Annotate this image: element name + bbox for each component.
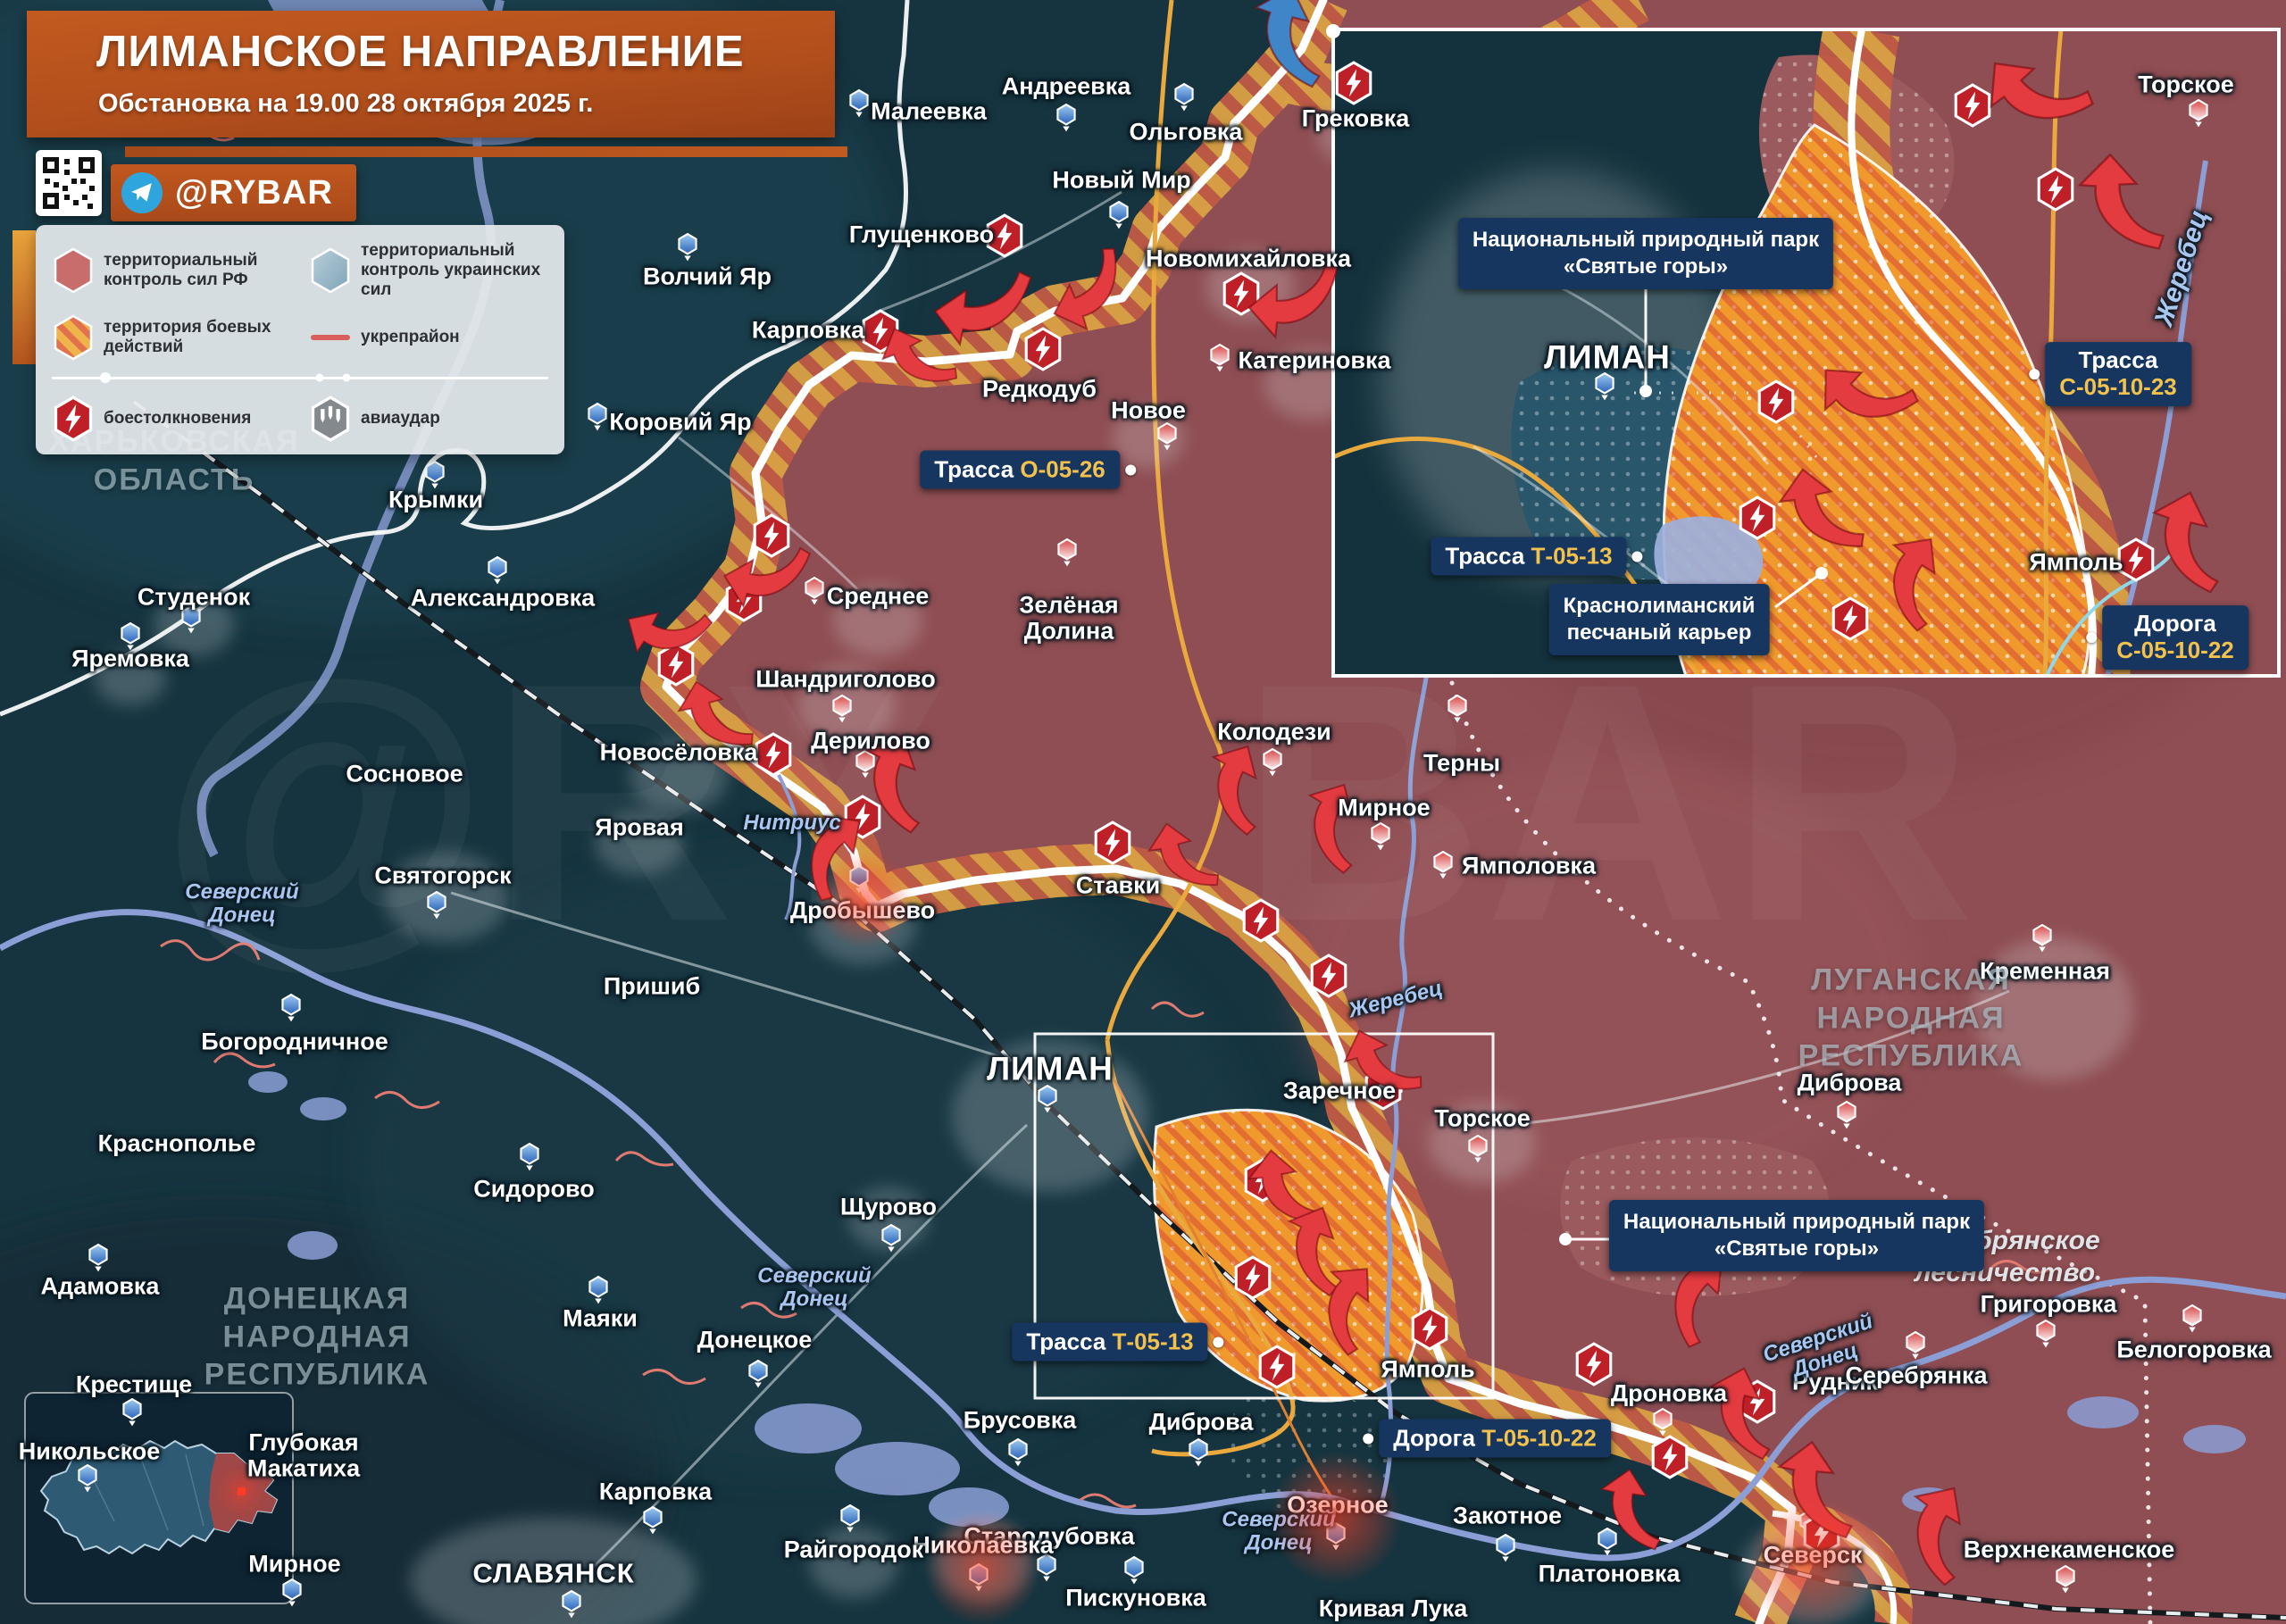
title-block: ЛИМАНСКОЕ НАПРАВЛЕНИЕ Обстановка на 19.0… xyxy=(27,11,835,137)
telegram-icon xyxy=(121,172,163,213)
legend-fort-label: укрепрайон xyxy=(361,328,548,347)
watermark-text: @RY xyxy=(159,612,948,992)
legend-airstrike-label: авиаудар xyxy=(361,409,548,429)
map-infographic: @RY BAR xyxy=(0,0,2286,1624)
legend: территориальный контроль сил РФ территор… xyxy=(36,225,564,454)
inset-map xyxy=(1333,29,2286,676)
channel-name: @RYBAR xyxy=(175,174,333,212)
qr-code[interactable] xyxy=(36,150,102,216)
legend-fort-icon xyxy=(309,314,352,361)
legend-accent-bar xyxy=(13,230,36,364)
map-title: ЛИМАНСКОЕ НАПРАВЛЕНИЕ xyxy=(96,27,745,77)
legend-clash-icon xyxy=(52,396,95,442)
telegram-channel-badge[interactable]: @RYBAR xyxy=(111,164,356,221)
legend-ua-icon xyxy=(309,247,352,294)
legend-divider xyxy=(52,377,548,379)
map-subtitle: Обстановка на 19.00 28 октября 2025 г. xyxy=(98,89,593,119)
qr-pattern xyxy=(41,155,96,211)
zone-dotted-torske xyxy=(1560,1137,1831,1296)
legend-ua-label: территориальный контроль украинских сил xyxy=(361,241,548,300)
legend-war-icon xyxy=(52,314,95,361)
legend-rf-icon xyxy=(52,247,95,294)
legend-clash-label: боестолкновения xyxy=(104,409,309,429)
legend-war-label: территория боевых действий xyxy=(104,318,309,357)
legend-rf-label: территориальный контроль сил РФ xyxy=(104,251,309,290)
legend-airstrike-icon xyxy=(309,396,352,442)
ukraine-minimap xyxy=(25,1393,293,1603)
